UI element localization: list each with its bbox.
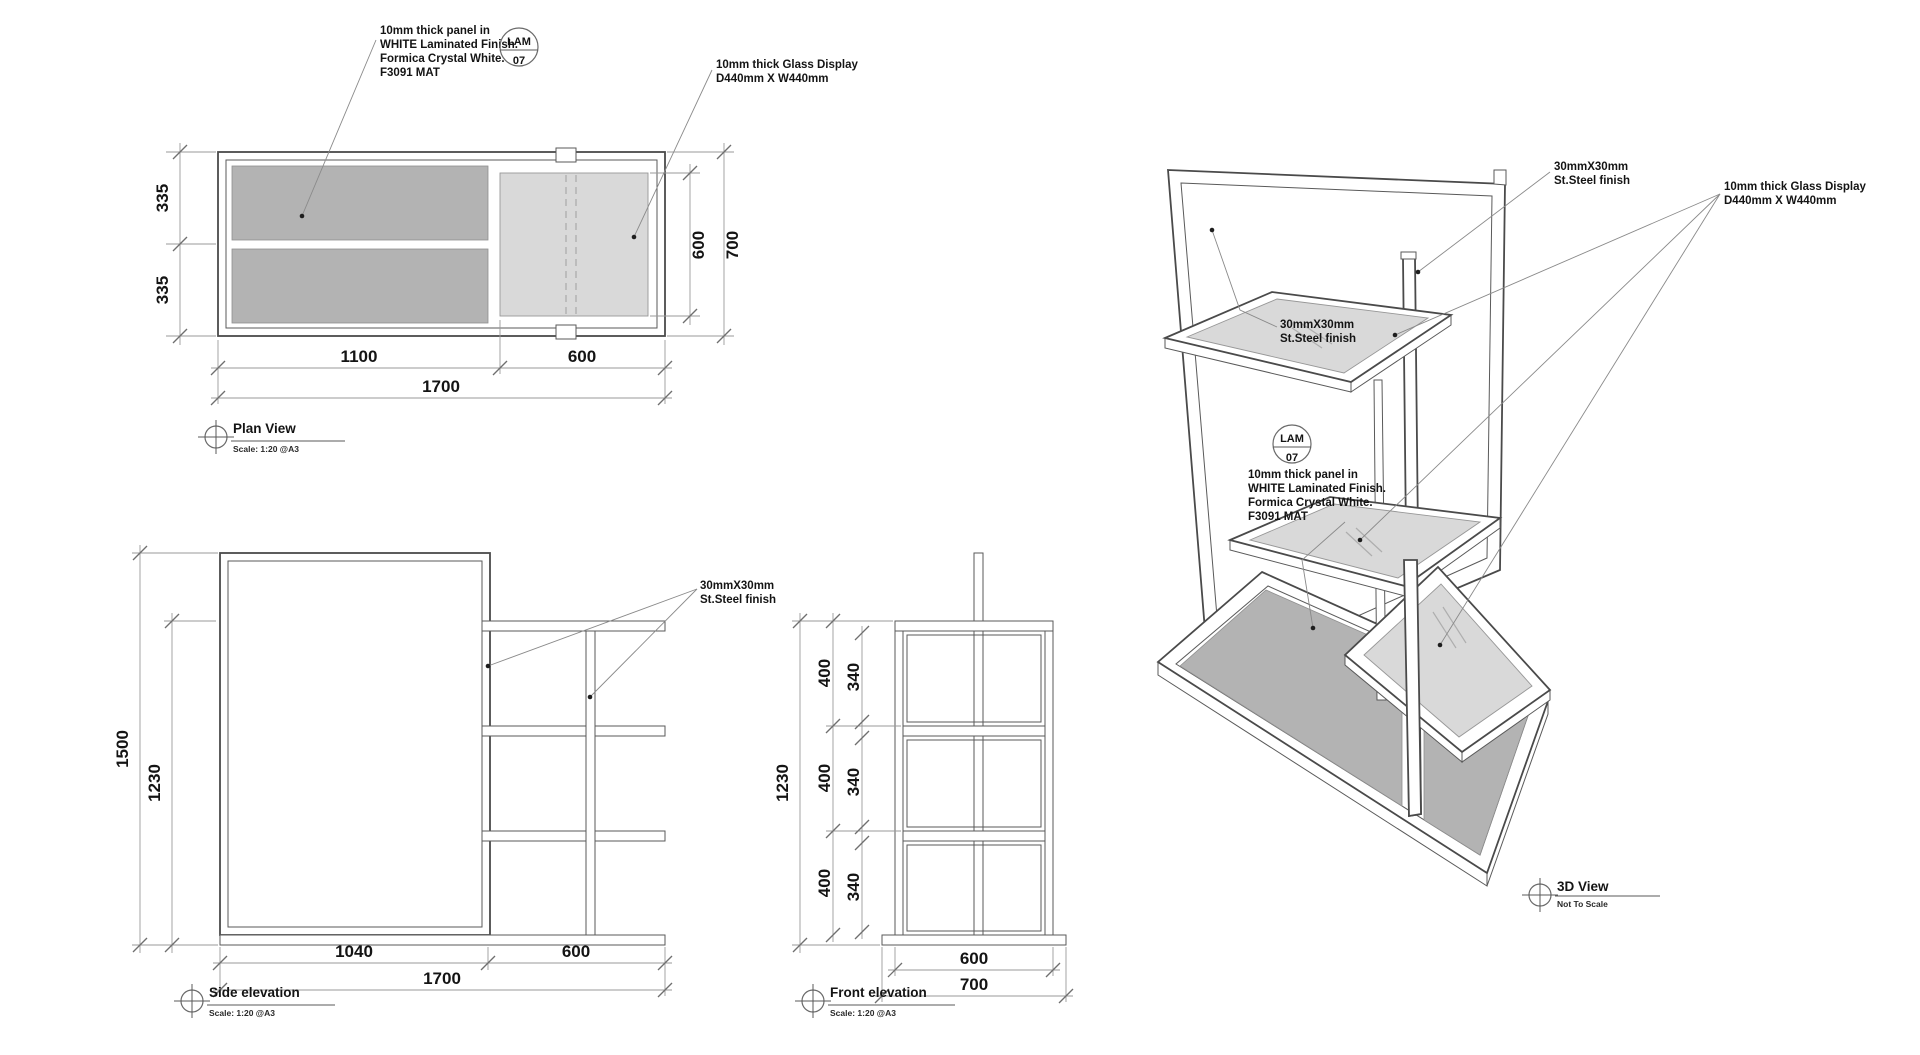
3d-lam-tag-number: 07 — [1286, 452, 1298, 464]
3d-panel-note-1: 10mm thick panel in — [1248, 469, 1358, 481]
plan-dim-600-bottom: 600 — [568, 347, 596, 366]
3d-panel-note-4: F3091 MAT — [1248, 511, 1308, 523]
side-dim-600: 600 — [562, 942, 590, 961]
plan-dim-335-top: 335 — [153, 184, 172, 212]
front-dim-400-1: 400 — [815, 659, 834, 687]
plan-scale: Scale: 1:20 @A3 — [233, 444, 299, 454]
plan-dim-600-right: 600 — [689, 231, 708, 259]
front-title: Front elevation — [830, 985, 927, 1000]
plan-laminate-panel-top — [232, 166, 488, 240]
side-shelf-3 — [482, 831, 665, 841]
side-shelf-1 — [482, 621, 665, 631]
3d-glass-note-2: D440mm X W440mm — [1724, 195, 1837, 207]
side-shelf-2 — [482, 726, 665, 736]
3d-lam-tag-code: LAM — [1280, 433, 1304, 445]
front-dim-600: 600 — [960, 949, 988, 968]
front-object — [882, 553, 1066, 945]
plan-panel-note-3: Formica Crystal White. — [380, 53, 505, 65]
plan-dim-1700: 1700 — [422, 377, 460, 396]
plan-dim-700-right: 700 — [723, 231, 742, 259]
side-steel-note-2: St.Steel finish — [700, 594, 776, 606]
plan-panel-note-1: 10mm thick panel in — [380, 25, 490, 37]
plan-laminate-panel-bottom — [232, 249, 488, 323]
front-dim-1230: 1230 — [773, 764, 792, 802]
cad-canvas: 335 335 600 700 1100 600 — [0, 0, 1920, 1055]
3d-glass-note-1: 10mm thick Glass Display — [1724, 181, 1867, 193]
front-dim-340-2: 340 — [844, 768, 863, 796]
front-dim-400-2: 400 — [815, 764, 834, 792]
plan-dim-335-bottom: 335 — [153, 276, 172, 304]
plan-lam-tag-code: LAM — [507, 36, 531, 48]
3d-steel-note-left-2: St.Steel finish — [1280, 333, 1356, 345]
front-dim-340-1: 340 — [844, 663, 863, 691]
front-dim-700: 700 — [960, 975, 988, 994]
side-steel-note-1: 30mmX30mm — [700, 580, 774, 592]
front-shelf-bar-2 — [903, 831, 1045, 841]
side-dim-1700: 1700 — [423, 969, 461, 988]
front-elevation: 1230 400 400 400 340 340 340 — [773, 553, 1073, 1018]
3d-steel-note-left-1: 30mmX30mm — [1280, 319, 1354, 331]
plan-title-block: Plan View Scale: 1:20 @A3 — [198, 420, 345, 454]
side-dim-1230: 1230 — [145, 764, 164, 802]
3d-title-block: 3D View Not To Scale — [1522, 878, 1660, 912]
plan-view: 335 335 600 700 1100 600 — [153, 25, 859, 454]
3d-steel-note-top-1: 30mmX30mm — [1554, 161, 1628, 173]
front-dim-340-3: 340 — [844, 873, 863, 901]
3d-panel-note-3: Formica Crystal White. — [1248, 497, 1373, 509]
front-pole-center — [974, 631, 983, 935]
plan-panel-note-4: F3091 MAT — [380, 67, 440, 79]
front-pole-top — [974, 553, 983, 621]
plan-post-break-bottom — [556, 325, 576, 339]
plan-panel-note-2: WHITE Laminated Finish. — [380, 39, 518, 51]
3d-front-pole-cap — [1401, 252, 1416, 259]
3d-steel-note-top-2: St.Steel finish — [1554, 175, 1630, 187]
front-dim-400-3: 400 — [815, 869, 834, 897]
side-dim-1040: 1040 — [335, 942, 373, 961]
side-base-bar — [220, 935, 665, 945]
front-scale: Scale: 1:20 @A3 — [830, 1008, 896, 1018]
front-top-bar — [895, 621, 1053, 631]
front-post-right — [1045, 621, 1053, 935]
plan-object — [218, 148, 665, 339]
drawing-sheet: 335 335 600 700 1100 600 — [0, 0, 1920, 1055]
plan-glass-note-2: D440mm X W440mm — [716, 73, 829, 85]
side-title-block: Side elevation Scale: 1:20 @A3 — [174, 984, 335, 1018]
3d-panel-note-2: WHITE Laminated Finish. — [1248, 483, 1386, 495]
3d-title: 3D View — [1557, 879, 1609, 894]
side-object — [220, 553, 665, 945]
front-shelf-bar-1 — [903, 726, 1045, 736]
side-title: Side elevation — [209, 985, 300, 1000]
plan-title: Plan View — [233, 421, 296, 436]
3d-scale: Not To Scale — [1557, 899, 1608, 909]
3d-back-panel-post-cap — [1494, 170, 1506, 185]
plan-post-break-top — [556, 148, 576, 162]
side-post — [586, 631, 595, 935]
plan-glass-display — [500, 173, 648, 316]
front-title-block: Front elevation Scale: 1:20 @A3 — [795, 984, 955, 1018]
front-base-bar — [882, 935, 1066, 945]
front-post-left — [895, 621, 903, 935]
side-scale: Scale: 1:20 @A3 — [209, 1008, 275, 1018]
side-elevation: 1500 1230 1040 600 1700 30mmX30mm — [113, 545, 776, 1018]
side-dim-1500: 1500 — [113, 730, 132, 768]
plan-dim-1100: 1100 — [341, 347, 378, 366]
three-d-view: 30mmX30mm St.Steel finish 10mm thick Gla… — [1158, 161, 1867, 912]
side-annotations: 30mmX30mm St.Steel finish — [486, 580, 776, 699]
side-panel-inner — [228, 561, 482, 927]
plan-lam-tag-number: 07 — [513, 55, 525, 67]
plan-glass-note-1: 10mm thick Glass Display — [716, 59, 859, 71]
